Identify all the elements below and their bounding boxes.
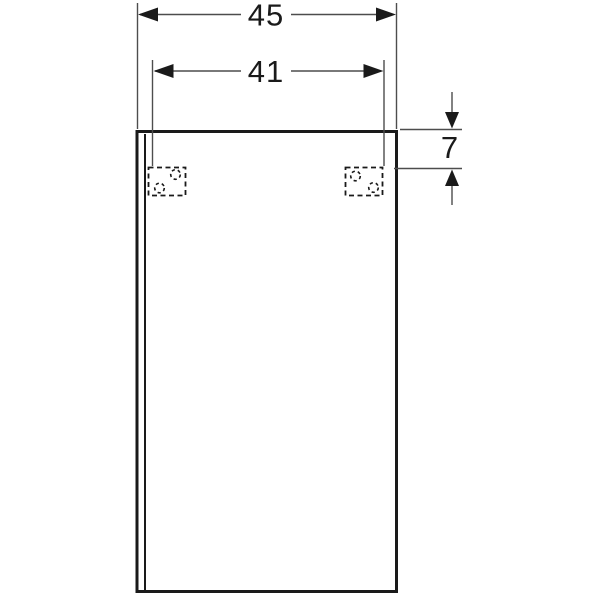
cabinet-outline: [137, 132, 397, 592]
arrowhead-left-icon: [138, 8, 158, 22]
cabinet-front-panel: [137, 132, 397, 592]
dim-mounting-distance-label: 41: [248, 54, 284, 89]
arrowhead-up-icon: [445, 170, 459, 187]
arrowhead-right-icon: [376, 8, 396, 22]
dim-top-offset-label: 7: [441, 130, 459, 165]
dimension-drawing: 45 41 7: [0, 0, 600, 600]
arrowhead-left-icon: [154, 64, 174, 78]
bracket-outline: [346, 168, 383, 196]
arrowhead-right-icon: [364, 64, 384, 78]
screw-hole-icon: [155, 183, 165, 193]
screw-hole-icon: [351, 171, 361, 181]
mounting-bracket-right: [346, 168, 383, 196]
dimension-top-offset: 7: [394, 92, 462, 205]
screw-hole-icon: [369, 183, 379, 193]
dim-overall-width-label: 45: [248, 0, 284, 33]
screw-hole-icon: [171, 170, 181, 180]
mounting-bracket-left: [149, 168, 186, 196]
drawing-canvas: 45 41 7: [0, 0, 600, 600]
dimension-mounting-distance: 41: [153, 54, 385, 166]
arrowhead-down-icon: [445, 112, 459, 129]
